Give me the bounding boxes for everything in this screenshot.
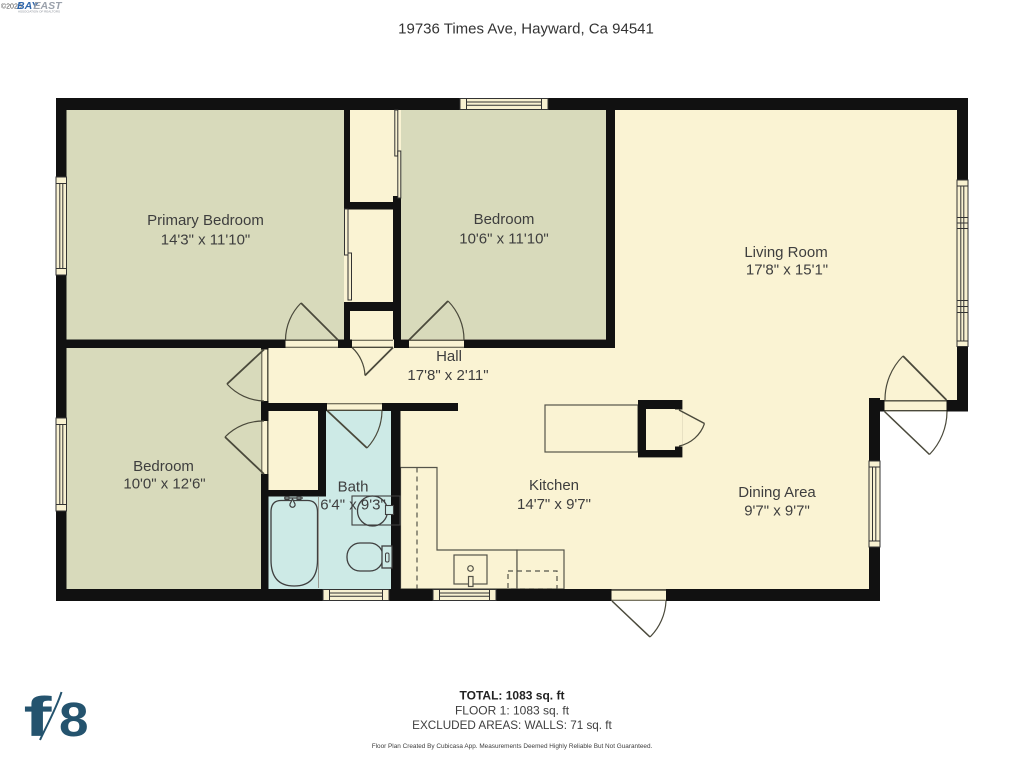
svg-text:6'4" x 9'3": 6'4" x 9'3" [320, 497, 386, 514]
svg-text:f: f [24, 685, 53, 748]
svg-text:17'8" x 2'11": 17'8" x 2'11" [407, 367, 488, 384]
svg-text:Bedroom: Bedroom [474, 211, 535, 228]
svg-text:ASSOCIATION OF REALTORS: ASSOCIATION OF REALTORS [18, 10, 60, 14]
svg-text:19736 Times Ave, Hayward, Ca 9: 19736 Times Ave, Hayward, Ca 94541 [398, 21, 654, 38]
svg-text:FLOOR 1: 1083 sq. ft: FLOOR 1: 1083 sq. ft [455, 704, 570, 718]
svg-text:Kitchen: Kitchen [529, 477, 579, 494]
svg-text:10'6" x 11'10": 10'6" x 11'10" [459, 231, 549, 248]
svg-text:TOTAL: 1083 sq. ft: TOTAL: 1083 sq. ft [460, 689, 565, 703]
svg-text:Bedroom: Bedroom [133, 458, 194, 475]
svg-text:14'3" x 11'10": 14'3" x 11'10" [161, 232, 251, 249]
svg-text:Living Room: Living Room [744, 244, 827, 261]
svg-text:Hall: Hall [436, 348, 462, 365]
svg-text:14'7" x 9'7": 14'7" x 9'7" [517, 496, 591, 513]
svg-text:9'7" x 9'7": 9'7" x 9'7" [744, 503, 810, 520]
svg-text:Floor Plan Created By Cubicasa: Floor Plan Created By Cubicasa App. Meas… [372, 743, 653, 750]
svg-text:10'0" x 12'6": 10'0" x 12'6" [123, 476, 205, 493]
svg-text:Dining Area: Dining Area [738, 484, 816, 501]
svg-text:EXCLUDED AREAS: WALLS: 71 sq.: EXCLUDED AREAS: WALLS: 71 sq. ft [412, 719, 612, 732]
svg-text:17'8" x 15'1": 17'8" x 15'1" [746, 262, 828, 279]
svg-text:Primary Bedroom: Primary Bedroom [147, 212, 264, 229]
svg-text:Bath: Bath [338, 479, 369, 496]
svg-text:8: 8 [59, 694, 89, 747]
